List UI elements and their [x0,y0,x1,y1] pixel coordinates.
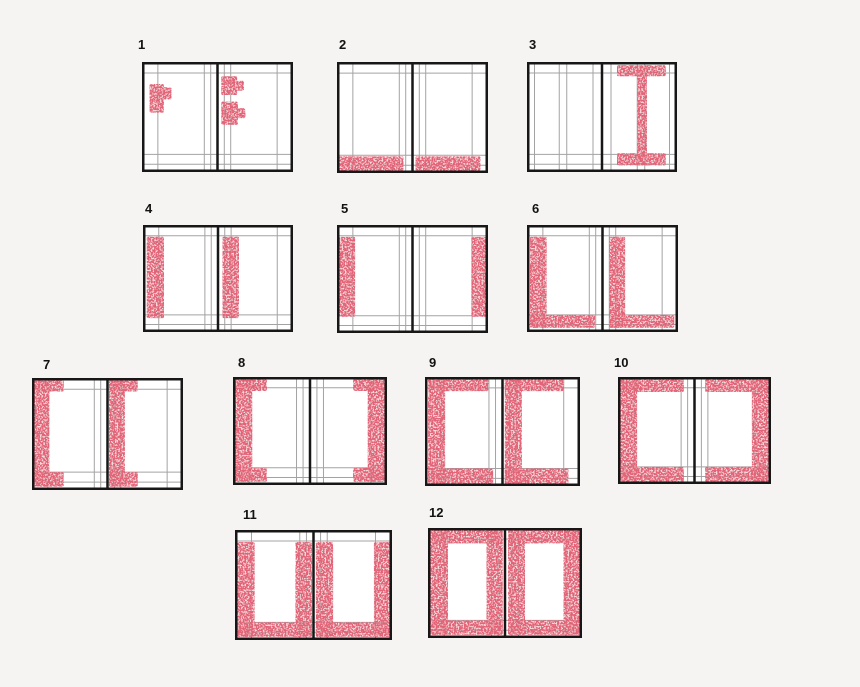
annotation-zone [236,81,244,91]
spread-figure-11 [235,530,392,640]
annotation-zone [637,66,647,165]
annotation-zone [235,468,267,482]
annotation-zone [530,315,595,328]
spread-figure-2 [337,62,488,173]
spread-figure-3 [527,62,677,172]
annotation-zone [428,378,445,484]
figure-label-5: 5 [341,202,348,216]
annotation-zone [564,530,580,635]
annotation-zone [705,467,768,482]
annotation-zone [530,237,547,328]
spread-diagram [527,62,677,172]
figure-label-9: 9 [429,356,436,370]
annotation-zone [353,468,385,482]
annotation-zone [430,620,502,634]
spread-diagram [428,528,582,638]
spread-figure-8 [233,377,387,485]
annotation-zone [237,622,312,636]
figure-label-7: 7 [43,358,50,372]
figure-label-6: 6 [532,202,539,216]
annotation-zone [34,380,50,486]
spread-figure-12 [428,528,582,638]
figure-label-12: 12 [429,506,443,520]
annotation-zone [609,315,674,328]
annotation-zone [368,379,385,482]
annotation-zone [339,237,355,317]
annotation-zone [428,469,493,484]
spread-figure-5 [337,225,488,333]
spread-diagram [143,225,293,332]
figure-label-2: 2 [339,38,346,52]
figure-label-3: 3 [529,38,536,52]
spread-diagram [527,225,678,332]
annotation-zone [109,472,138,487]
spread-figure-6 [527,225,678,332]
marginalia-diagram-grid: 123456789101112 [0,0,860,687]
annotation-zone [221,102,238,125]
spread-diagram [337,225,488,333]
annotation-zone [34,472,64,487]
annotation-zone [221,76,237,95]
spread-diagram [337,62,488,173]
spread-figure-7 [32,378,183,490]
annotation-zone [487,530,503,635]
annotation-zone [147,237,164,318]
annotation-zone [505,469,569,484]
figure-label-4: 4 [145,202,152,216]
annotation-zone [339,156,404,170]
annotation-zone [430,530,448,635]
annotation-zone [617,153,666,165]
spread-figure-9 [425,377,580,486]
annotation-zone [109,380,125,486]
annotation-zone [163,87,171,99]
spread-diagram [142,62,293,172]
annotation-zone [752,379,769,482]
annotation-zone [237,108,245,118]
annotation-zone [316,622,391,636]
figure-label-10: 10 [614,356,628,370]
annotation-zone [223,237,240,318]
annotation-zone [508,620,580,634]
spread-diagram [32,378,183,490]
spread-figure-1 [142,62,293,172]
annotation-zone [609,237,625,328]
spread-diagram [425,377,580,486]
spread-figure-4 [143,225,293,332]
annotation-zone [620,379,637,482]
spread-diagram [235,530,392,640]
spread-figure-10 [618,377,771,484]
annotation-zone [150,84,164,113]
figure-label-8: 8 [238,356,245,370]
annotation-zone [471,237,486,317]
annotation-zone [505,378,522,484]
annotation-zone [416,156,481,170]
figure-label-11: 11 [243,508,257,522]
annotation-zone [235,379,252,482]
spread-diagram [618,377,771,484]
annotation-zone [508,530,525,635]
annotation-zone [620,467,683,482]
figure-label-1: 1 [138,38,145,52]
spread-diagram [233,377,387,485]
